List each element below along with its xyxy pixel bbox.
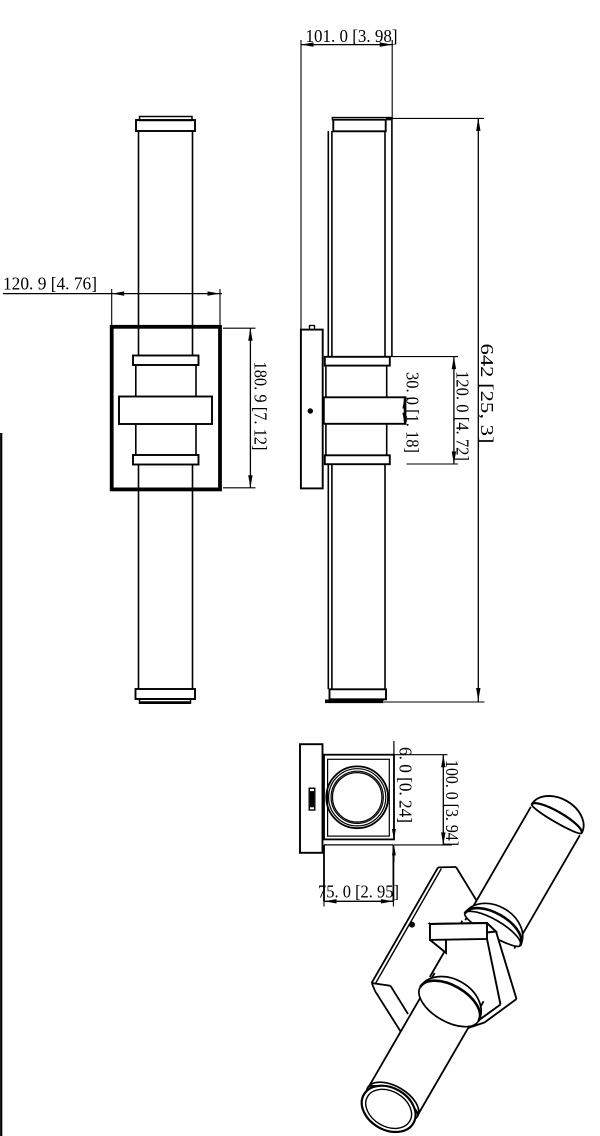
svg-text:100. 0 [3. 94]: 100. 0 [3. 94] [442, 760, 462, 846]
svg-text:120. 9 [4. 76]: 120. 9 [4. 76] [3, 274, 97, 294]
svg-text:75. 0 [2. 95]: 75. 0 [2. 95] [318, 882, 399, 902]
svg-text:6. 0 [0. 24]: 6. 0 [0. 24] [395, 747, 415, 823]
svg-text:642 [25, 3]: 642 [25, 3] [477, 344, 497, 444]
svg-text:120. 0 [4. 72]: 120. 0 [4. 72] [452, 371, 472, 461]
svg-text:180. 9 [7. 12]: 180. 9 [7. 12] [250, 362, 270, 451]
svg-text:101. 0 [3. 98]: 101. 0 [3. 98] [306, 26, 398, 46]
svg-text:30. 0 [1. 18]: 30. 0 [1. 18] [402, 372, 422, 453]
